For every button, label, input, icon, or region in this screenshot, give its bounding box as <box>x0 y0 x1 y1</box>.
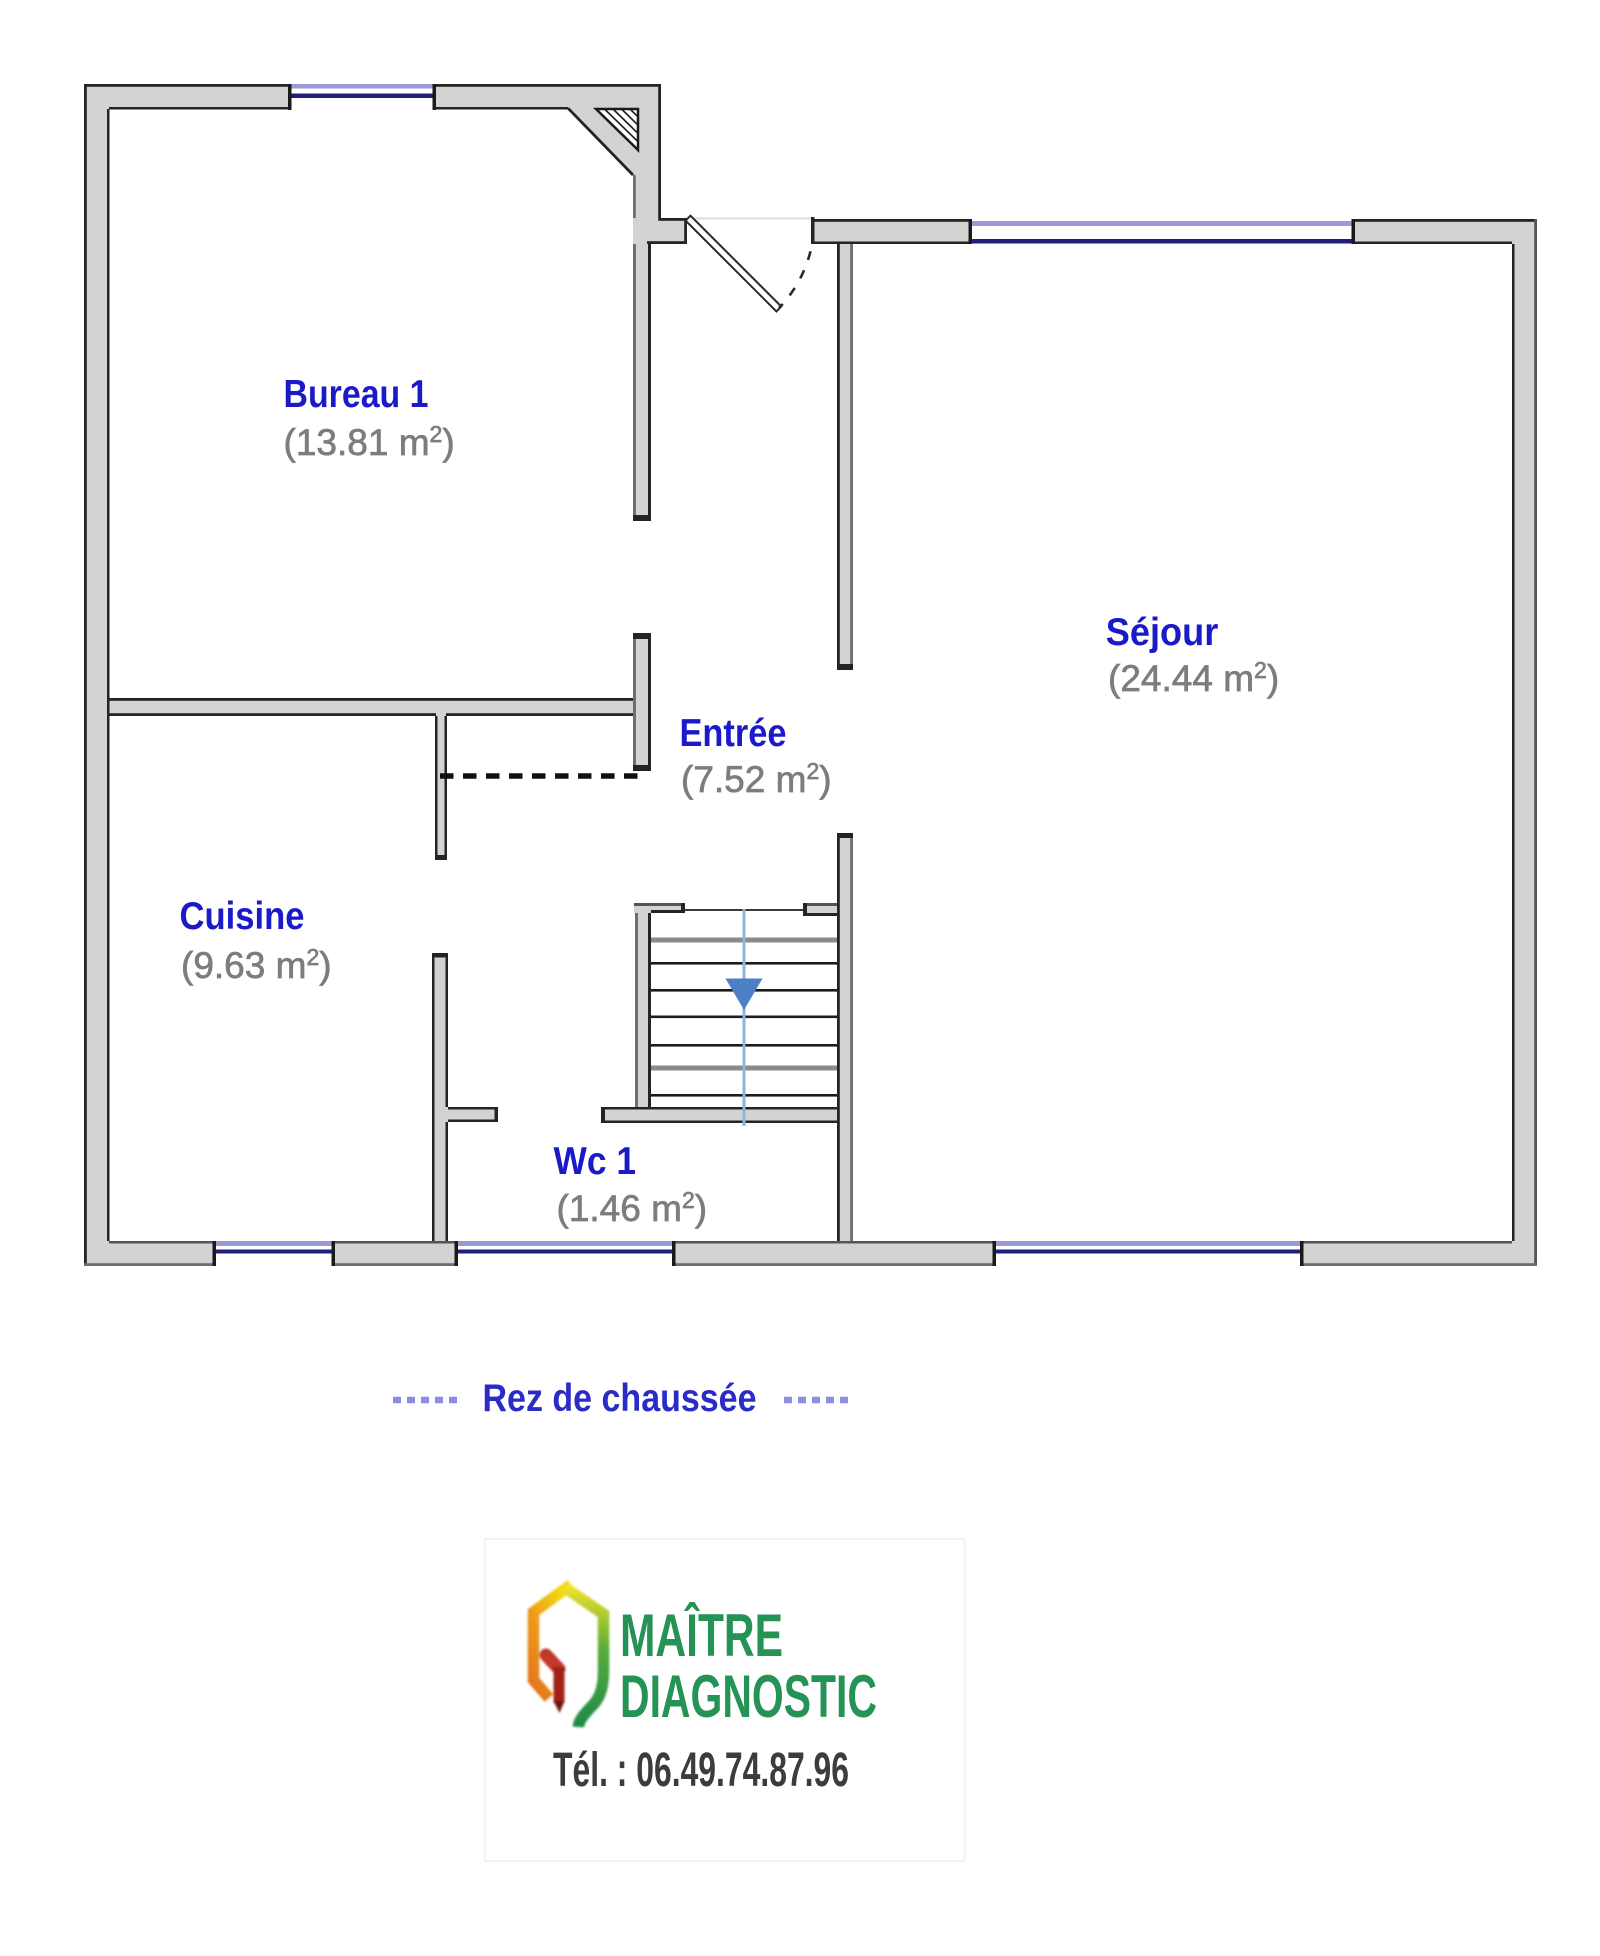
svg-text:(24.44 m2): (24.44 m2) <box>1108 657 1279 699</box>
svg-text:DIAGNOSTIC: DIAGNOSTIC <box>620 1663 877 1730</box>
svg-text:Tél. : 06.49.74.87.96: Tél. : 06.49.74.87.96 <box>553 1744 849 1797</box>
svg-text:Bureau 1: Bureau 1 <box>284 373 429 416</box>
svg-text:Séjour: Séjour <box>1106 611 1219 654</box>
svg-text:(13.81 m2): (13.81 m2) <box>284 421 455 463</box>
svg-text:Wc 1: Wc 1 <box>554 1140 637 1183</box>
svg-text:MAÎTRE: MAÎTRE <box>620 1602 783 1669</box>
svg-text:Entrée: Entrée <box>680 712 787 755</box>
svg-text:Cuisine: Cuisine <box>180 895 305 938</box>
svg-text:Rez de chaussée: Rez de chaussée <box>483 1377 757 1420</box>
